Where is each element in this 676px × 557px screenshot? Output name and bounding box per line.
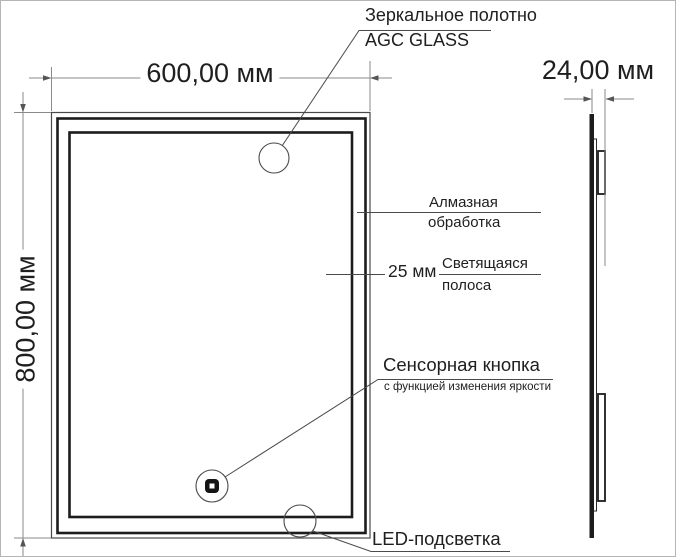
side-view (590, 114, 606, 538)
mirror-technical-drawing: 600,00 мм 800,00 мм 24,00 мм Зеркальное … (0, 0, 676, 557)
diamond-edge-callout-line2: обработка (428, 215, 500, 231)
light-strip-callout-line2: полоса (442, 278, 491, 294)
width-arrow-right (370, 75, 379, 81)
width-arrow-left (43, 75, 52, 81)
side-bracket-top (598, 151, 605, 194)
height-arrow-bottom (20, 538, 26, 547)
height-dimension-label: 800,00 мм (11, 249, 40, 388)
touch-button-callout-subtitle: с функцией изменения яркости (384, 381, 551, 393)
height-arrow-top (20, 104, 26, 113)
callout-leaders (225, 31, 553, 552)
touch-button-icon-center (210, 484, 215, 489)
glass-callout-circle (259, 143, 289, 173)
touch-button-callout-title: Сенсорная кнопка (383, 355, 540, 375)
depth-arrow-right (606, 96, 615, 102)
mirror-glass-callout-line1: Зеркальное полотно (365, 6, 537, 25)
luminous-strip-outline (70, 133, 353, 518)
touch-leader-line (225, 380, 553, 478)
mirror-outer-edge (52, 113, 371, 539)
width-dimension-label: 600,00 мм (140, 59, 279, 88)
diamond-edge-callout-line1: Алмазная (429, 195, 498, 211)
depth-dimension-label: 24,00 мм (536, 56, 660, 85)
light-strip-callout-line1: Светящаяся (442, 256, 528, 272)
depth-dimension (564, 89, 634, 266)
depth-arrow-left (584, 96, 593, 102)
side-glass-profile (590, 114, 595, 538)
side-bracket-bottom (598, 394, 605, 501)
led-backlight-callout-label: LED-подсветка (372, 529, 501, 549)
strip-width-label: 25 мм (385, 262, 439, 281)
mirror-frame-outline (58, 119, 366, 534)
mirror-glass-callout-line2: AGC GLASS (365, 31, 469, 50)
front-view (52, 113, 371, 539)
